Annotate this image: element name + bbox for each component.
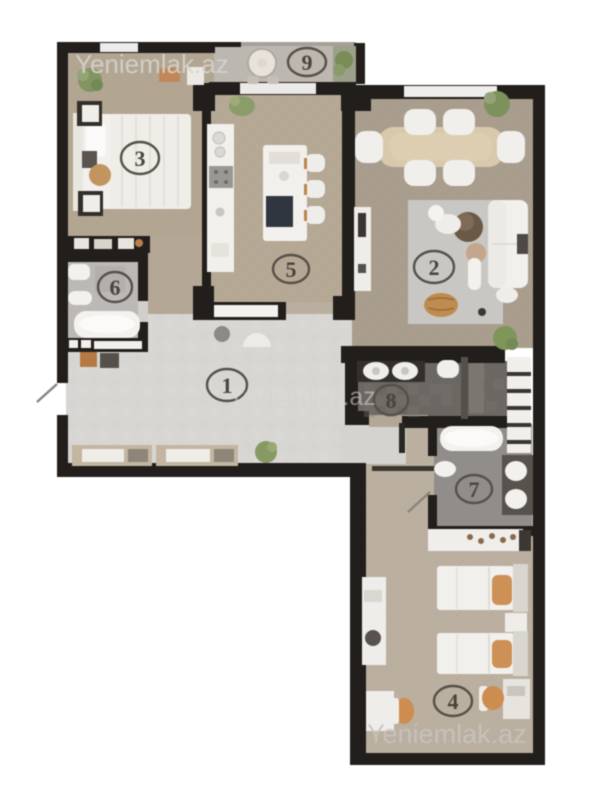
svg-text:Yeniemlak.az: Yeniemlak.az (367, 719, 527, 749)
svg-text:7: 7 (469, 477, 480, 502)
svg-text:9: 9 (302, 50, 313, 75)
svg-text:2: 2 (429, 255, 440, 280)
svg-text:Yeniemlak.az: Yeniemlak.az (228, 383, 376, 411)
svg-text:Yeniemlak.az: Yeniemlak.az (75, 49, 229, 79)
svg-text:5: 5 (286, 257, 297, 282)
svg-text:6: 6 (110, 275, 121, 300)
svg-text:3: 3 (135, 146, 146, 171)
svg-text:8: 8 (386, 388, 397, 413)
svg-text:4: 4 (448, 689, 459, 714)
